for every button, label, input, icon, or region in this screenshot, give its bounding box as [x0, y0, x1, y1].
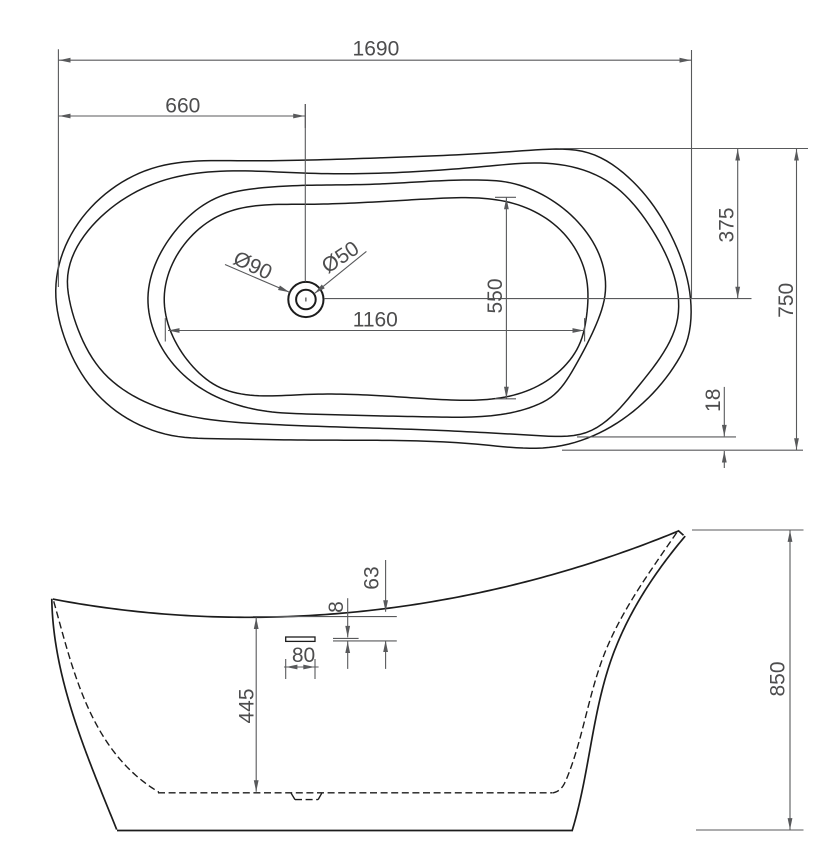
svg-text:63: 63: [361, 566, 384, 589]
svg-text:375: 375: [716, 207, 739, 242]
svg-text:445: 445: [236, 688, 259, 723]
svg-text:1690: 1690: [353, 38, 400, 61]
svg-text:80: 80: [292, 644, 315, 667]
svg-text:8: 8: [325, 601, 348, 613]
svg-text:750: 750: [775, 283, 798, 318]
svg-text:660: 660: [165, 95, 200, 118]
svg-text:1160: 1160: [353, 308, 398, 331]
svg-text:550: 550: [484, 278, 507, 313]
svg-text:850: 850: [767, 661, 790, 696]
svg-text:18: 18: [702, 389, 725, 412]
